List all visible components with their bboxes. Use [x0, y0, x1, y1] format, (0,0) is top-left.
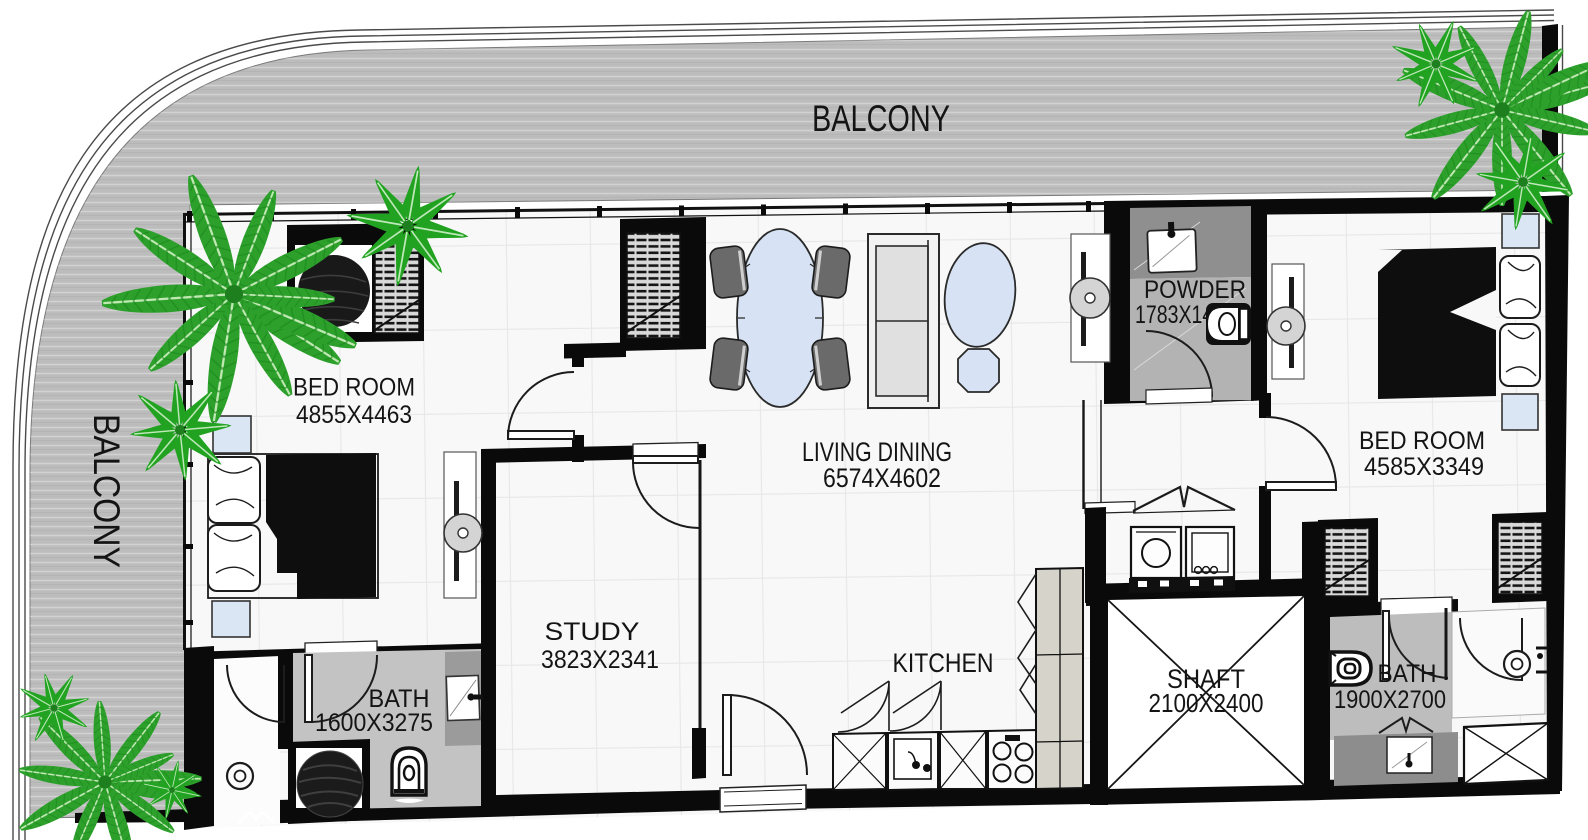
svg-text:BALCONY: BALCONY [812, 98, 950, 139]
svg-text:KITCHEN: KITCHEN [893, 648, 994, 678]
svg-text:4855X4463: 4855X4463 [296, 401, 412, 429]
svg-text:1600X3275: 1600X3275 [315, 709, 433, 737]
svg-text:BED ROOM: BED ROOM [1359, 427, 1485, 455]
svg-text:STUDY: STUDY [545, 618, 640, 646]
svg-text:3823X2341: 3823X2341 [541, 646, 659, 674]
svg-text:2100X2400: 2100X2400 [1149, 688, 1264, 718]
svg-text:BALCONY: BALCONY [86, 414, 127, 568]
svg-text:6574X4602: 6574X4602 [823, 463, 941, 493]
svg-text:4585X3349: 4585X3349 [1364, 453, 1484, 481]
svg-text:BATH: BATH [1378, 660, 1437, 688]
svg-text:1900X2700: 1900X2700 [1334, 686, 1446, 714]
svg-text:POWDER: POWDER [1144, 276, 1246, 304]
svg-text:BED ROOM: BED ROOM [293, 374, 415, 402]
